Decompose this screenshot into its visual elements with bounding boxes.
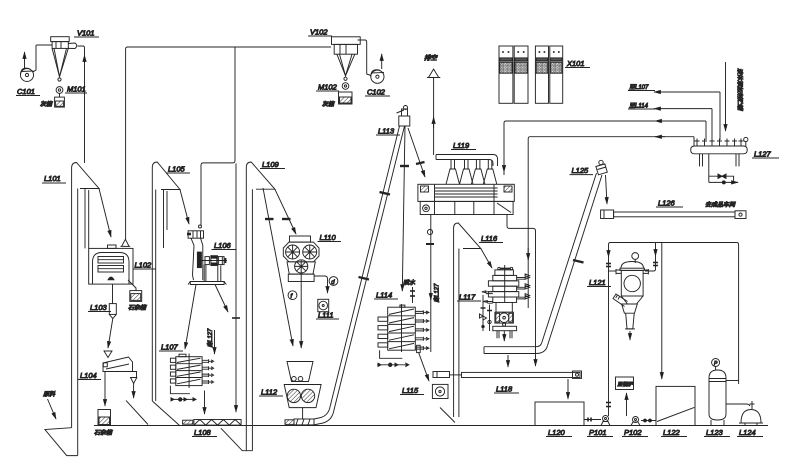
svg-text:L103: L103 (90, 303, 108, 312)
svg-text:L112: L112 (261, 388, 278, 397)
svg-text:L117: L117 (459, 293, 476, 302)
svg-text:自L127: 自L127 (206, 328, 214, 348)
svg-text:石杂箱: 石杂箱 (128, 304, 147, 312)
svg-text:L114: L114 (376, 291, 392, 300)
svg-text:L116: L116 (481, 234, 498, 243)
svg-text:L121: L121 (589, 278, 606, 287)
svg-text:P101: P101 (589, 428, 607, 437)
svg-text:至锅炉: 至锅炉 (617, 381, 633, 388)
svg-text:L101: L101 (44, 174, 61, 183)
svg-text:V101: V101 (77, 29, 95, 38)
svg-text:灰箱: 灰箱 (322, 100, 335, 108)
svg-text:原料: 原料 (43, 390, 56, 398)
svg-text:M101: M101 (67, 85, 86, 94)
svg-text:去成品车间: 去成品车间 (705, 201, 736, 209)
svg-text:V102: V102 (310, 28, 328, 37)
svg-text:L105: L105 (168, 165, 186, 174)
svg-text:L125: L125 (572, 166, 590, 175)
svg-text:L111: L111 (318, 311, 334, 320)
svg-text:L108: L108 (194, 428, 212, 437)
svg-text:L126: L126 (658, 199, 676, 208)
svg-text:喷水: 喷水 (403, 279, 416, 287)
svg-text:排空: 排空 (424, 54, 439, 62)
svg-text:P102: P102 (624, 428, 642, 437)
svg-text:L124: L124 (739, 428, 756, 437)
svg-text:石杂箱: 石杂箱 (94, 429, 113, 437)
svg-text:C101: C101 (17, 87, 35, 96)
svg-text:L120: L120 (548, 428, 566, 437)
svg-text:液体添加剂贮罐: 液体添加剂贮罐 (736, 68, 744, 111)
svg-text:自L127: 自L127 (433, 283, 441, 303)
svg-text:L109: L109 (262, 160, 280, 169)
svg-text:M102: M102 (318, 83, 338, 92)
svg-text:L123: L123 (706, 428, 724, 437)
svg-text:L113: L113 (378, 127, 395, 136)
svg-text:L107: L107 (161, 343, 179, 352)
svg-text:X101: X101 (566, 59, 585, 68)
svg-text:灰箱: 灰箱 (40, 100, 53, 108)
svg-text:L115: L115 (402, 386, 419, 395)
svg-text:L110: L110 (320, 233, 337, 242)
svg-text:L104: L104 (80, 371, 97, 380)
svg-text:L106: L106 (214, 241, 232, 250)
svg-text:L119: L119 (453, 141, 470, 150)
svg-text:L127: L127 (754, 150, 772, 159)
svg-text:至L114: 至L114 (629, 103, 649, 110)
svg-text:C102: C102 (367, 88, 386, 97)
svg-text:L102: L102 (135, 261, 153, 270)
svg-text:L118: L118 (496, 385, 513, 394)
svg-text:至L107: 至L107 (629, 84, 649, 91)
svg-text:L122: L122 (663, 428, 681, 437)
